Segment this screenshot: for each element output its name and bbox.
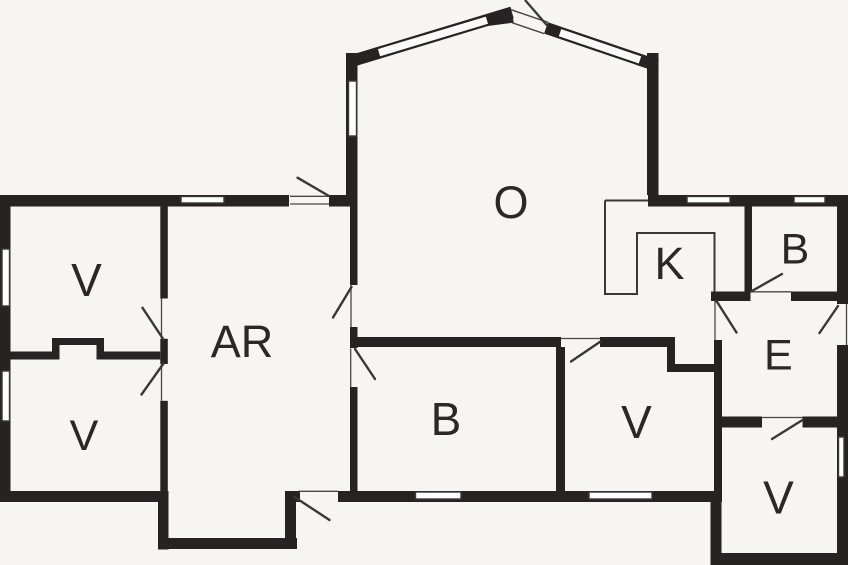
svg-text:B: B bbox=[781, 226, 810, 274]
svg-text:V: V bbox=[71, 254, 102, 306]
svg-text:O: O bbox=[493, 177, 528, 228]
svg-text:E: E bbox=[764, 332, 793, 380]
svg-text:V: V bbox=[621, 396, 652, 448]
svg-text:K: K bbox=[654, 238, 684, 289]
svg-text:B: B bbox=[431, 393, 462, 445]
svg-text:V: V bbox=[763, 472, 794, 524]
svg-text:V: V bbox=[70, 412, 99, 460]
svg-text:AR: AR bbox=[211, 316, 274, 367]
